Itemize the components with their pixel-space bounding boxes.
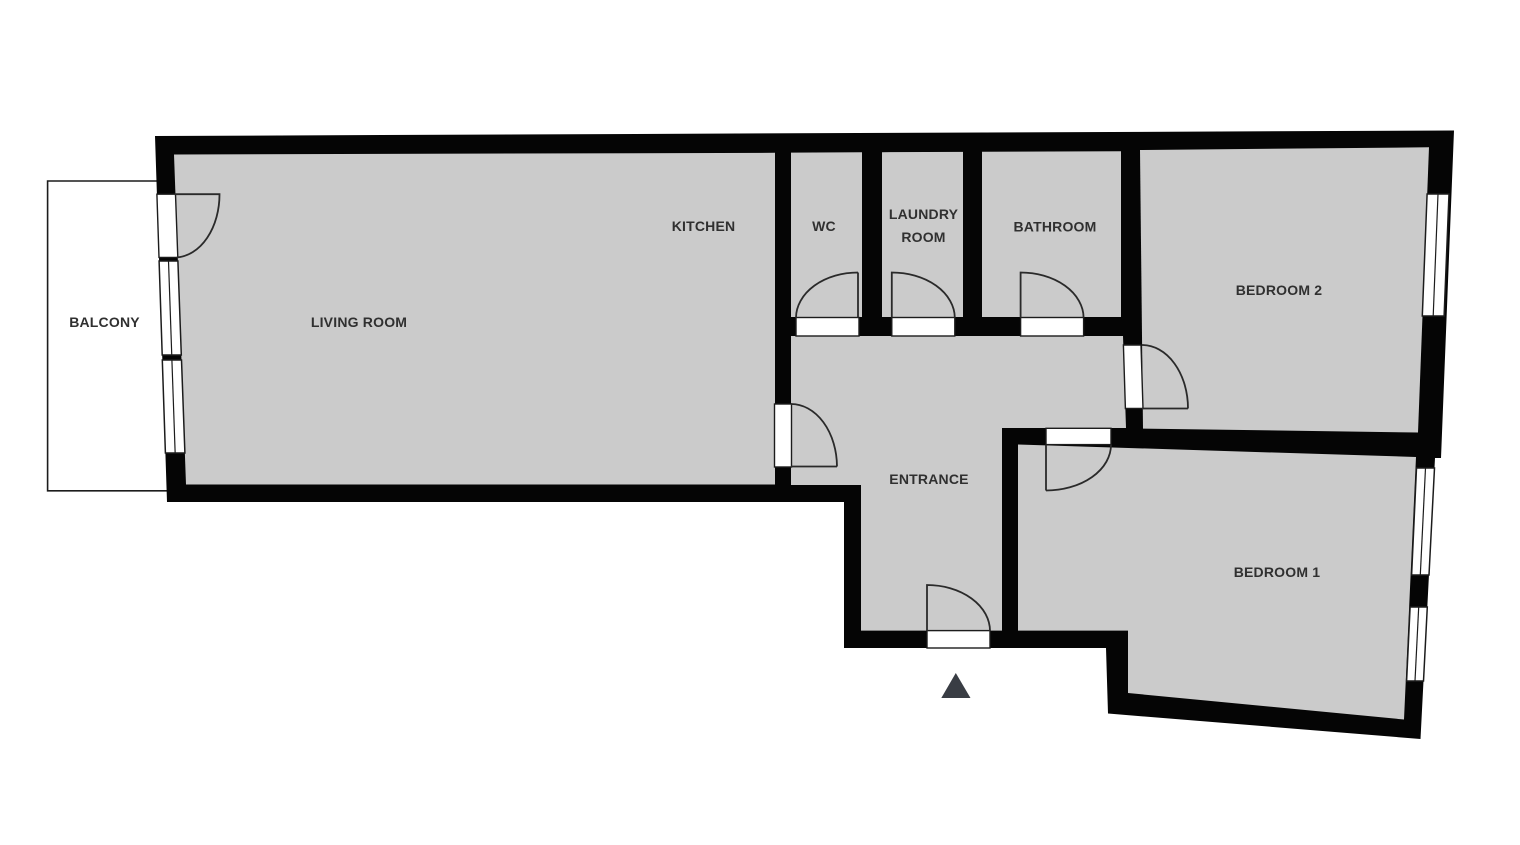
svg-text:KITCHEN: KITCHEN <box>672 218 736 234</box>
svg-text:LIVING ROOM: LIVING ROOM <box>311 314 407 330</box>
svg-text:ENTRANCE: ENTRANCE <box>889 471 968 487</box>
svg-text:BEDROOM 2: BEDROOM 2 <box>1236 282 1323 298</box>
svg-text:WC: WC <box>812 218 836 234</box>
svg-text:ROOM: ROOM <box>901 229 945 245</box>
svg-text:BALCONY: BALCONY <box>69 314 140 330</box>
svg-text:LAUNDRY: LAUNDRY <box>889 206 959 222</box>
svg-text:BEDROOM 1: BEDROOM 1 <box>1234 564 1321 580</box>
svg-text:BATHROOM: BATHROOM <box>1014 219 1097 235</box>
